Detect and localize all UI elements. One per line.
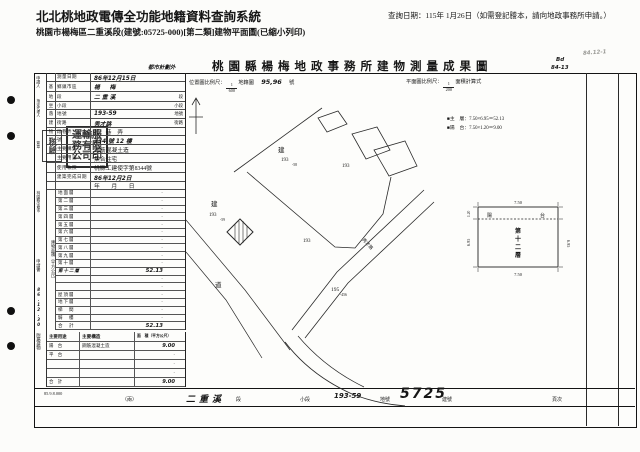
floor-area-value: · (91, 245, 185, 251)
floor-area-value: 52.13 (91, 323, 185, 329)
field-unit: 段 (179, 94, 185, 100)
floor-label: 第四層 (56, 213, 91, 220)
field-unit: 小段 (174, 103, 185, 109)
table-row: 物 段巷弄 段 巷 弄 (47, 128, 185, 136)
application-label: 申請書 (36, 259, 40, 272)
floor-area-value: · (91, 214, 185, 220)
balcony-char-left: 陽 (487, 212, 492, 219)
floor-label (56, 283, 91, 290)
balcony-char-right: 台 (540, 212, 545, 219)
table-row: 坐 小段 小段 (47, 102, 185, 110)
group-char: 物 (47, 128, 56, 135)
signature-label: 簽章 (36, 141, 40, 148)
annex-area-value: · (135, 361, 185, 367)
parcel-label: 193 (209, 213, 217, 218)
table-row: 第十層 · (56, 260, 185, 268)
table-row: · (56, 276, 185, 284)
floor-area-value: · (91, 198, 185, 204)
floor-area-value: · (91, 292, 185, 298)
field-label (56, 182, 91, 189)
table-row: 主要構造 鋼筋混凝土造 (47, 145, 185, 154)
table-row: 第四層 · (56, 213, 185, 221)
annex-building-table: 主要用途 主要構造 面 積（平方公尺） 陽 台 鋼筋混凝土造 9.00 平 台 … (47, 332, 186, 387)
building-info-table: 測量日期 86年12月15日 基 鄉鎮市區 楊 梅 地 段 二重溪 段 坐 小段… (47, 73, 186, 190)
floor-label (56, 276, 91, 283)
parcel-sub: -59 (220, 218, 225, 222)
table-row: 主要用途 集合住宅 (47, 154, 185, 163)
field-value: 桃縣工建使字第8344號 (91, 163, 183, 172)
table-row: 合 計 9.00 (47, 378, 185, 387)
page-title: 北北桃地政電傳全功能地籍資料查詢系統 (36, 6, 261, 25)
floor-area-value: · (91, 253, 185, 259)
annex-use: 平 台 (47, 351, 80, 359)
parcel-label: 193 (281, 158, 289, 163)
table-row: 建 街路 秀才路 街路 (47, 119, 185, 128)
field-value: 段 巷 弄 (91, 128, 183, 136)
group-char: 地 (47, 92, 56, 101)
floor-area-value: · (91, 229, 185, 235)
table-row: 地面層 · (56, 190, 185, 198)
field-value: 鋼筋混凝土造 (91, 145, 183, 154)
annex-structure (80, 378, 135, 386)
parcel-label: 193 (342, 164, 350, 169)
svg-text:第: 第 (514, 227, 521, 235)
group-char (47, 163, 56, 172)
floor-label: 梯 間 (56, 307, 91, 314)
floor-label: 第二層 (56, 198, 91, 205)
hole-punch-dot (7, 132, 15, 140)
annex-group-label: 附屬建物 (36, 333, 41, 350)
table-row: 第十二層 52.13 (56, 268, 185, 276)
annotation-urban-plan: 都市計劃外 (148, 63, 176, 71)
annex-use: 陽 台 (47, 342, 80, 350)
field-value: 193-59 (91, 111, 174, 117)
field-label: 小段 (56, 102, 91, 109)
field-label: 地號 (56, 110, 91, 118)
floor-area-value: · (91, 299, 185, 305)
annex-use (47, 369, 80, 377)
svg-text:十: 十 (515, 235, 521, 243)
field-value: 楊 梅 (91, 82, 183, 91)
received-date-stamp: 86.12.30 (36, 287, 40, 327)
field-label: 段巷弄 (56, 128, 91, 135)
annex-header-row: 主要用途 主要構造 面 積（平方公尺） (47, 332, 185, 342)
field-label: 主要用途 (56, 154, 91, 162)
table-row: 基 鄉鎮市區 楊 梅 (47, 82, 185, 92)
parcel-label: 193 (303, 239, 311, 244)
annex-area-value: 9.00 (135, 343, 185, 349)
field-value: 二重溪 (91, 92, 179, 101)
table-row: 使用執照 桃縣工建使字第8344號 (47, 163, 185, 173)
applicant-label: 申請人 (36, 76, 40, 88)
binding-rule-line (586, 73, 587, 426)
field-value: 334 號 12 樓 (91, 136, 183, 145)
survey-document-title: 桃園縣楊梅地政事務所建物測量成果圖 (212, 58, 493, 74)
table-row: 第三層 · (56, 206, 185, 214)
table-row: 梯 間 · (56, 307, 185, 315)
table-row: 年 月 日 (47, 182, 185, 190)
floor-label: 合 計 (56, 322, 91, 329)
field-value: 集合住宅 (91, 154, 183, 163)
query-date: 查詢日期：115年 1月26日（如需登記謄本，請向地政事務所申請。） (388, 10, 611, 21)
table-row: 陽 台 鋼筋混凝土造 9.00 (47, 342, 185, 351)
floor-label: 第九層 (56, 252, 91, 259)
table-row: 測量日期 86年12月15日 (47, 73, 185, 82)
floor-label: 第七層 (56, 237, 91, 244)
hole-punch-dot (7, 96, 15, 104)
table-row: 地下層 · (56, 299, 185, 307)
floor-area-value: 52.13 (91, 268, 185, 274)
floor-label: 第十二層 (56, 268, 91, 275)
agent-label: 指定代理人 (36, 99, 40, 117)
floor-area-value: · (91, 222, 185, 228)
field-label: 鄉鎮市區 (56, 82, 91, 91)
floor-area-value: · (91, 190, 185, 196)
field-value: 86年12月15日 (91, 73, 183, 82)
floor-area-table: 地面層 · 第二層 · 第三層 · 第四層 · 第五層 · 第六層 · 第七層 … (56, 190, 186, 330)
road-label: 道 (215, 280, 222, 289)
table-row: 平 台 · (47, 351, 185, 360)
field-label: 使用執照 (56, 163, 91, 172)
table-row: 地 段 二重溪 段 (47, 92, 185, 102)
group-char: 落 (47, 110, 56, 118)
annex-area-value: 9.00 (135, 379, 185, 385)
table-row: 第七層 · (56, 237, 185, 245)
subject-building-mark (227, 219, 253, 245)
field-value: 秀才路 (91, 119, 174, 128)
field-label: 段 (56, 92, 91, 101)
group-char (47, 182, 56, 189)
annex-use (47, 360, 80, 368)
floor-label: 地面層 (56, 190, 91, 197)
hole-punch-dot (7, 342, 15, 350)
parcel-sub: -456 (340, 293, 347, 297)
table-row: 建築完成日期 86年12月2日 (47, 173, 185, 182)
annex-use: 合 計 (47, 378, 80, 386)
field-unit: 地號 (174, 111, 185, 117)
hole-punch-dot (7, 307, 15, 315)
table-row: 第八層 · (56, 244, 185, 252)
building-label: 建 (211, 199, 218, 208)
floor-label: 第十層 (56, 260, 91, 267)
table-row: 合 計 52.13 (56, 322, 185, 330)
field-label: 主要構造 (56, 145, 91, 153)
floor-area-value: · (91, 206, 185, 212)
surveyor-address: 桃園縣中壢市 (36, 191, 40, 213)
field-label: 建築完成日期 (56, 173, 91, 181)
group-char: 門 (47, 136, 56, 144)
floor-area-value: · (91, 284, 185, 290)
field-label: 街路 (56, 119, 91, 127)
building-label: 建 (278, 145, 285, 154)
svg-text:層: 層 (515, 251, 521, 259)
floor-label: 屋頂層 (56, 291, 91, 298)
area-group-label: 建物面積（平方公尺） (47, 190, 56, 330)
annex-structure (80, 360, 135, 368)
annex-structure (80, 369, 135, 377)
annex-structure: 鋼筋混凝土造 (80, 342, 135, 350)
table-row: 騎 樓 · (56, 315, 185, 323)
strip-note: （兩） (122, 396, 137, 403)
table-row: · (47, 369, 185, 378)
svg-text:二: 二 (515, 244, 521, 251)
table-row: · (56, 283, 185, 291)
land-registry-query-page: { "header": { "system_title": "北北桃地政電傳全功… (0, 0, 640, 452)
group-char: 基 (47, 82, 56, 91)
floor-label: 騎 樓 (56, 315, 91, 322)
dim-right: 6.95 (566, 240, 571, 247)
annotation-code: Bd (556, 57, 564, 63)
field-unit: 街路 (174, 120, 185, 126)
annotation-code2: 84-13 (551, 65, 569, 71)
floor-area-value: · (91, 307, 185, 313)
form-left-margin: 申請人 指定代理人 簽章 桃園縣中壢市 申請書 86.12.30 附屬建物 (34, 73, 47, 387)
field-value: 86年12月2日 (91, 173, 183, 182)
table-row: 第六層 · (56, 229, 185, 237)
north-arrow (189, 98, 203, 134)
floor-area-value: · (91, 315, 185, 321)
floor-label: 第八層 (56, 244, 91, 251)
field-value: 年 月 日 (91, 182, 183, 190)
parcel-sub: -58 (292, 163, 297, 167)
group-char (47, 73, 56, 81)
parcel-label: 195 (331, 287, 340, 293)
floor-number-label: 第 十 二 層 (514, 227, 521, 259)
field-label: 號 (56, 136, 91, 144)
annotation-faint: 84.12-1 (583, 49, 607, 57)
table-row: · (47, 360, 185, 369)
group-char: 坐 (47, 102, 56, 109)
floor-label: 第六層 (56, 229, 91, 236)
annex-area-value: · (135, 352, 185, 358)
floor-label: 第五層 (56, 221, 91, 228)
floor-label: 地下層 (56, 299, 91, 306)
table-row: 第二層 · (56, 198, 185, 206)
floor-area-value: · (91, 237, 185, 243)
document-subtitle: 桃園市楊梅區二重溪段(建號:05725-000)[第二類]建物平面圖(已縮小列印… (36, 26, 305, 38)
group-char (47, 154, 56, 162)
group-char (47, 173, 56, 181)
dim-bottom: 7.50 (514, 272, 523, 277)
table-row: 第五層 · (56, 221, 185, 229)
table-row: 門 號 334 號 12 樓 (47, 136, 185, 145)
binding-rule-line (618, 73, 619, 426)
table-row: 屋頂層 · (56, 291, 185, 299)
group-char (47, 145, 56, 153)
table-row: 落 地號 193-59 地號 (47, 110, 185, 119)
floor-plan: 7.50 7.50 6.95 1.20 6.95 陽 台 第 十 二 層 (455, 185, 585, 285)
dim-top: 7.50 (514, 200, 523, 205)
floor-area-value: · (91, 276, 185, 282)
annex-structure (80, 351, 135, 359)
field-label: 測量日期 (56, 73, 91, 81)
print-code: 85.9.8.000 (44, 391, 62, 396)
group-char: 建 (47, 119, 56, 127)
annex-area-value: · (135, 370, 185, 376)
dim-balcony: 1.20 (467, 211, 471, 217)
road-name-label: 秀才路 (361, 237, 376, 252)
dim-left: 6.95 (466, 239, 471, 246)
table-row: 第九層 · (56, 252, 185, 260)
floor-area-value: · (91, 260, 185, 266)
floor-label: 第三層 (56, 206, 91, 213)
